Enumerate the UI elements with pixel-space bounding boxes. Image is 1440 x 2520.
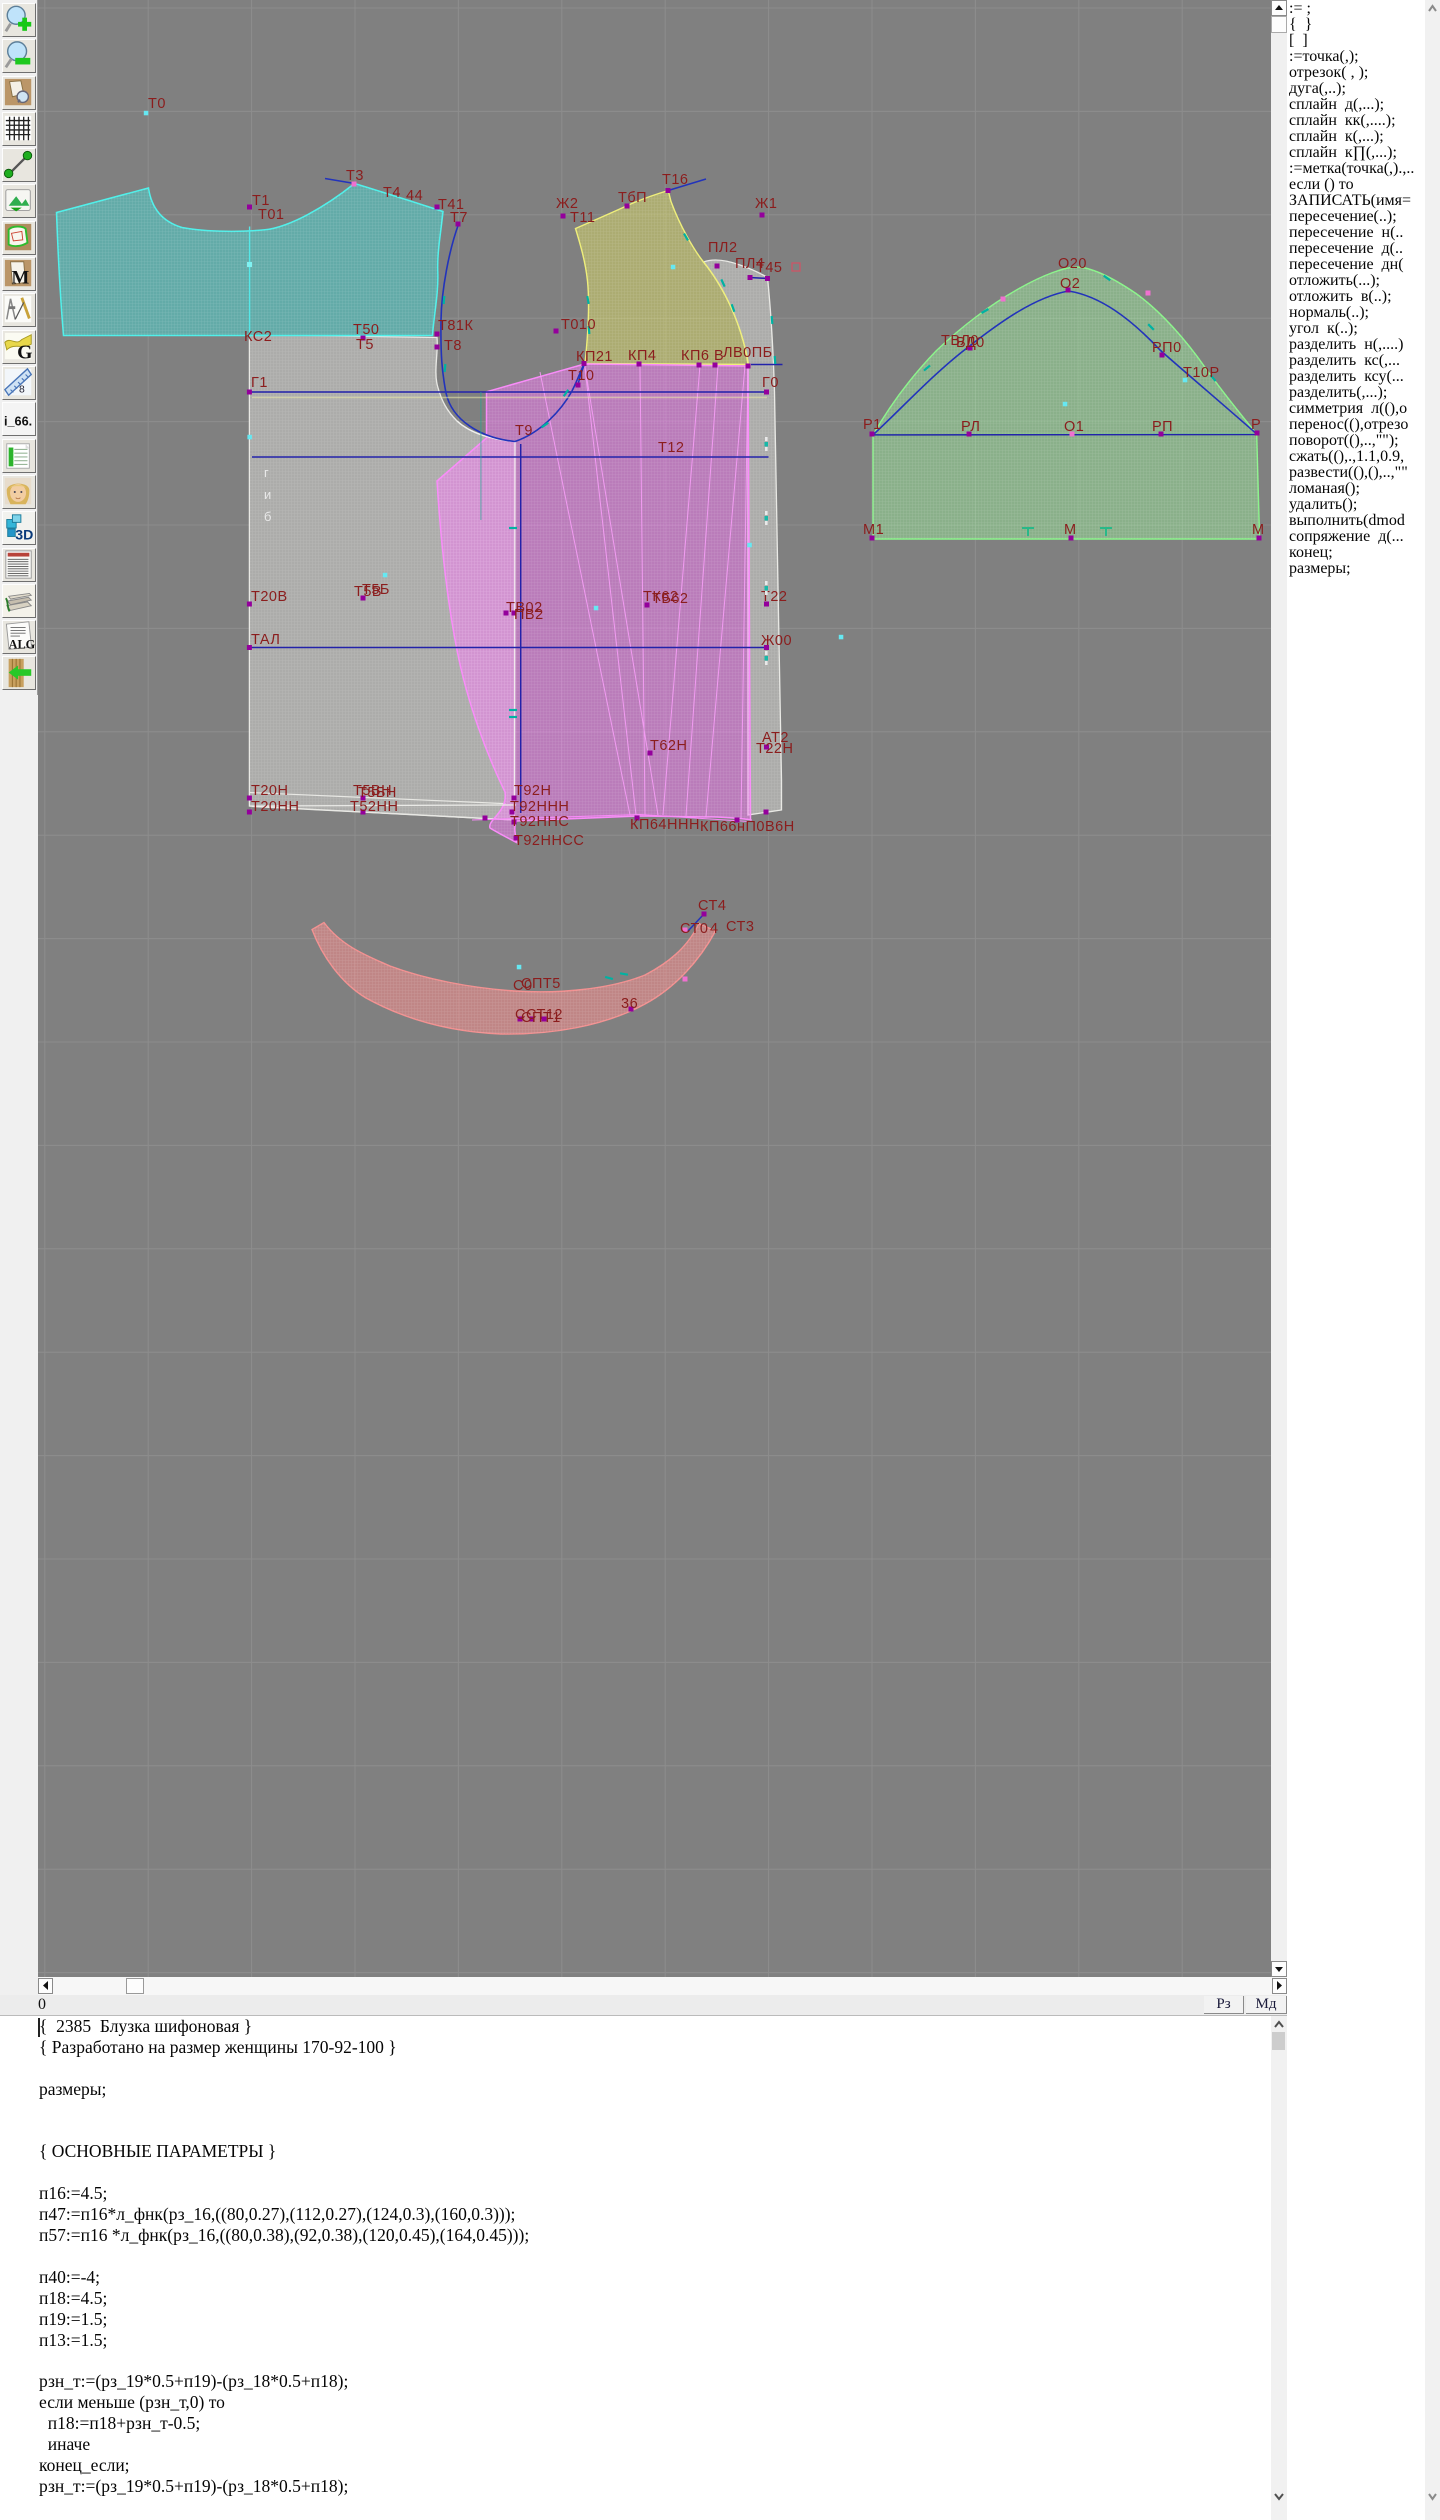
svg-text:Р1: Р1 bbox=[863, 417, 882, 433]
svg-text:КП64ННН: КП64ННН bbox=[630, 817, 700, 833]
svg-text:Т3: Т3 bbox=[346, 168, 364, 184]
svg-text:КП21: КП21 bbox=[576, 349, 613, 365]
svg-text:Т20НН: Т20НН bbox=[251, 799, 299, 815]
svg-text:Т81К: Т81К bbox=[438, 318, 473, 334]
svg-text:Т5БН: Т5БН bbox=[358, 785, 397, 801]
svg-text:i_66.: i_66. bbox=[4, 415, 32, 429]
svg-text:Т52НН: Т52НН bbox=[350, 799, 398, 815]
svg-text:Т10: Т10 bbox=[568, 368, 595, 384]
svg-text:ТАЛ: ТАЛ bbox=[251, 632, 280, 648]
svg-text:Т20В: Т20В bbox=[251, 589, 288, 605]
svg-text:36: 36 bbox=[621, 996, 638, 1012]
svg-text:G: G bbox=[17, 341, 32, 363]
svg-text:Т10Р: Т10Р bbox=[1183, 365, 1220, 381]
svg-text:Т9: Т9 bbox=[515, 423, 533, 439]
svg-text:8: 8 bbox=[19, 384, 25, 395]
svg-text:ТбП: ТбП bbox=[618, 190, 647, 206]
svg-text:4: 4 bbox=[710, 921, 719, 937]
svg-text:ВД0: ВД0 bbox=[956, 335, 985, 351]
svg-text:М: М bbox=[1252, 522, 1265, 538]
svg-text:О20: О20 bbox=[1058, 256, 1087, 272]
svg-text:КП4: КП4 bbox=[628, 348, 656, 364]
svg-text:44: 44 bbox=[406, 188, 423, 204]
svg-text:Г1: Г1 bbox=[251, 375, 268, 391]
svg-text:Т92Н: Т92Н bbox=[514, 783, 551, 799]
svg-text:Т7: Т7 bbox=[450, 210, 468, 226]
svg-text:Т22: Т22 bbox=[761, 589, 788, 605]
svg-text:М: М bbox=[1064, 522, 1077, 538]
svg-text:Т12: Т12 bbox=[658, 440, 685, 456]
svg-text:Т20Н: Т20Н bbox=[251, 783, 288, 799]
svg-text:ALG: ALG bbox=[9, 637, 35, 651]
svg-text:Т5: Т5 bbox=[356, 337, 374, 353]
svg-text:КС2: КС2 bbox=[244, 329, 272, 345]
svg-text:ПВ2: ПВ2 bbox=[514, 607, 544, 623]
svg-text:Т92ННС: Т92ННС bbox=[510, 814, 569, 830]
svg-text:Т22Н: Т22Н bbox=[756, 741, 793, 757]
svg-text:Т01: Т01 bbox=[258, 207, 285, 223]
svg-text:СТ4: СТ4 bbox=[698, 898, 726, 914]
svg-text:М1: М1 bbox=[863, 522, 884, 538]
svg-text:СТ0: СТ0 bbox=[680, 921, 708, 937]
svg-text:M: M bbox=[11, 267, 29, 288]
svg-text:РП0: РП0 bbox=[1152, 340, 1182, 356]
svg-text:Т92ННН: Т92ННН bbox=[510, 799, 569, 815]
svg-text:Т4: Т4 bbox=[383, 185, 401, 201]
svg-text:и: и bbox=[264, 487, 271, 502]
svg-text:Т11: Т11 bbox=[570, 210, 595, 226]
svg-text:Ж00: Ж00 bbox=[761, 633, 792, 649]
svg-text:Т45: Т45 bbox=[756, 260, 783, 276]
svg-text:О2: О2 bbox=[1060, 276, 1080, 292]
svg-text:Т50: Т50 bbox=[353, 322, 380, 338]
svg-text:3D: 3D bbox=[15, 526, 33, 542]
svg-text:Т16: Т16 bbox=[662, 172, 689, 188]
svg-text:Т8: Т8 bbox=[444, 338, 462, 354]
svg-text:б: б bbox=[264, 509, 271, 524]
svg-text:ПЛ2: ПЛ2 bbox=[708, 240, 738, 256]
svg-text:С0: С0 bbox=[513, 978, 533, 994]
svg-text:ЛВ0ПБ: ЛВ0ПБ bbox=[723, 345, 773, 361]
svg-text:Т5Б: Т5Б bbox=[362, 582, 390, 598]
svg-text:Т0: Т0 bbox=[148, 96, 166, 112]
svg-text:Р: Р bbox=[1251, 417, 1261, 433]
svg-text:КП6 В: КП6 В bbox=[681, 348, 724, 364]
svg-text:О1: О1 bbox=[1064, 419, 1084, 435]
svg-text:Т92ННСС: Т92ННСС bbox=[514, 833, 584, 849]
svg-text:Т62Н: Т62Н bbox=[650, 738, 687, 754]
svg-text:Т010: Т010 bbox=[561, 317, 596, 333]
svg-text:Г0: Г0 bbox=[762, 375, 779, 391]
svg-text:СПТ1: СПТ1 bbox=[521, 1010, 561, 1026]
svg-text:КП66нП0В6Н: КП66нП0В6Н bbox=[700, 819, 795, 835]
svg-text:СТ3: СТ3 bbox=[726, 919, 754, 935]
svg-text:ТБ62: ТБ62 bbox=[652, 591, 689, 607]
svg-text:г: г bbox=[264, 465, 269, 480]
svg-text:РЛ: РЛ bbox=[961, 419, 980, 435]
svg-text:Ж1: Ж1 bbox=[755, 196, 777, 212]
svg-text:РП: РП bbox=[1152, 419, 1173, 435]
